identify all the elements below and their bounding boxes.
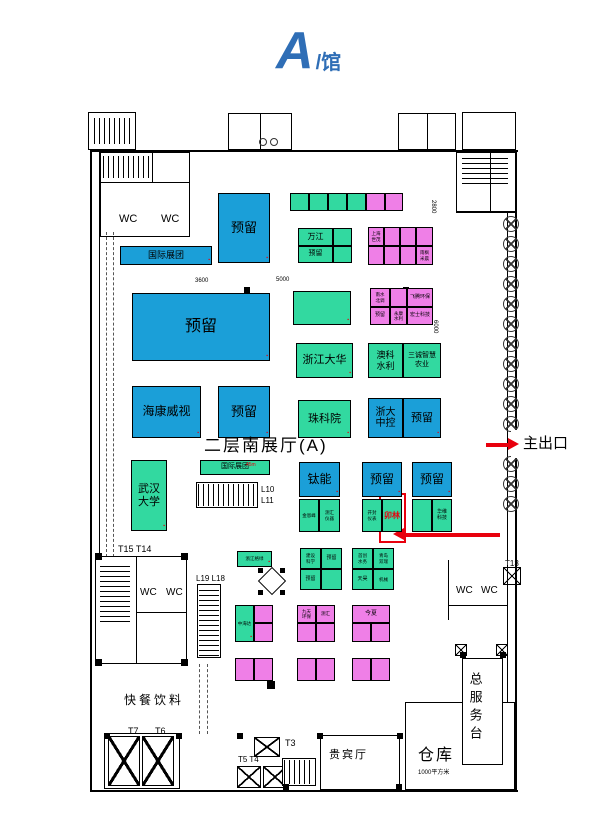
column-circle xyxy=(503,356,519,372)
marker-circle xyxy=(259,138,267,146)
booth xyxy=(316,658,335,681)
booth xyxy=(400,227,416,246)
column-square xyxy=(176,733,182,739)
column-square xyxy=(258,590,263,595)
wc-label: WC xyxy=(481,586,498,597)
booth: 测汇 xyxy=(316,605,335,623)
room-outline xyxy=(320,735,400,790)
column-square xyxy=(258,568,263,573)
column-square xyxy=(317,733,323,739)
size-mark: ▪ xyxy=(349,371,351,376)
booth: 预留▪ xyxy=(218,386,270,438)
column-square xyxy=(104,733,110,739)
hall-suffix: /馆 xyxy=(316,53,342,75)
size-mark: ▪ xyxy=(266,354,268,359)
wall xyxy=(100,182,190,183)
column-square xyxy=(283,784,289,790)
booth: 雨枫 米晨 xyxy=(416,246,433,265)
wall xyxy=(90,150,92,792)
booth xyxy=(254,605,273,623)
column-circle xyxy=(503,236,519,252)
booth: ▪ xyxy=(293,291,351,325)
booth: 预留 xyxy=(321,548,342,569)
wall xyxy=(90,790,518,792)
arrow-head xyxy=(508,438,519,450)
booth-taineng: 钛能▪ xyxy=(299,462,340,497)
size-mark: ▪ xyxy=(268,560,270,565)
booth xyxy=(309,193,328,211)
booth: 开封 仪表 xyxy=(362,499,382,532)
booth xyxy=(352,658,371,681)
hall-section-title: 二层南展厅(A) xyxy=(204,437,328,455)
service-desk-label: 总服务台 xyxy=(468,672,482,744)
booth xyxy=(254,623,273,642)
booth: 预留▪ xyxy=(362,462,402,497)
column-circle xyxy=(503,256,519,272)
elevator-label: T3 xyxy=(285,739,296,748)
column-square xyxy=(181,553,188,560)
column-square xyxy=(95,659,102,666)
warehouse-label: 仓库 xyxy=(418,748,454,765)
booth-intl-group-mid: 国际展团 xyxy=(200,460,270,475)
booth-highlighted: 卯林 xyxy=(382,499,402,532)
wall xyxy=(456,212,516,213)
wc-label: WC xyxy=(166,588,183,599)
booth: 机械 xyxy=(373,569,394,590)
size-mark: ▪ xyxy=(347,318,349,323)
column-square xyxy=(280,568,285,573)
booth: 天昊 xyxy=(352,569,373,590)
booth-hikvision: 海康威视▪ xyxy=(132,386,201,438)
size-mark: ▪ xyxy=(208,258,210,263)
column-square xyxy=(460,652,466,658)
dim-label: 6000 xyxy=(432,320,438,333)
dim-label: 3600 xyxy=(195,278,208,284)
wall xyxy=(448,605,508,606)
elevator-label: T7 xyxy=(128,727,139,736)
column-circle xyxy=(503,316,519,332)
booth: 首创 水务 xyxy=(352,548,373,569)
stair-label: L10 xyxy=(261,486,274,494)
stairs-hatch xyxy=(462,158,508,184)
booth: 建设 科学 xyxy=(300,548,321,569)
elevator-label: T5 T4 xyxy=(238,756,259,764)
elevator-shaft xyxy=(108,736,140,786)
booth xyxy=(254,658,273,681)
booth-wuhan-university: 武汉 大学▪ xyxy=(131,460,167,531)
column-square xyxy=(396,784,402,790)
column-circle xyxy=(503,296,519,312)
column-square xyxy=(95,553,102,560)
booth-aoke: 澳科 水利 xyxy=(368,343,403,378)
stairs-hatch xyxy=(199,586,219,656)
booth: 预留 xyxy=(300,569,321,590)
stairs-hatch xyxy=(100,562,130,622)
size-mark: ▪ xyxy=(250,635,252,640)
booth: 测汇 仪器 xyxy=(319,499,340,532)
booth xyxy=(366,193,385,211)
booth xyxy=(400,246,416,265)
size-mark: ▪ xyxy=(266,256,268,261)
booth xyxy=(371,658,390,681)
corridor-dash xyxy=(207,664,208,734)
column-square xyxy=(500,652,506,658)
room-outline xyxy=(462,112,516,150)
column-square xyxy=(237,733,243,739)
booth: 青岛 双瑞 xyxy=(373,548,394,569)
booth-sancheng: 三诚智慧 农业 xyxy=(403,343,441,378)
booth-zhonghaida: 中海达▪ xyxy=(235,605,254,642)
main-exit-label: 主出口 xyxy=(523,436,568,452)
wc-label: WC xyxy=(119,214,137,226)
booth xyxy=(297,658,316,681)
booth xyxy=(384,227,400,246)
elevator-shaft xyxy=(237,766,261,788)
column-circle xyxy=(503,336,519,352)
booth xyxy=(297,623,316,642)
booth xyxy=(390,288,407,307)
corridor-dash xyxy=(106,232,107,557)
booth xyxy=(290,193,309,211)
wc-label: WC xyxy=(140,588,157,599)
booth xyxy=(316,623,335,642)
booth xyxy=(384,246,400,265)
corridor-dash xyxy=(199,664,200,734)
booth-feiteng: 飞腾环保 xyxy=(407,288,433,307)
column-square xyxy=(397,733,403,739)
booth xyxy=(347,193,366,211)
size-mark: ▪ xyxy=(398,490,400,495)
booth xyxy=(321,569,342,590)
stairs-hatch xyxy=(103,156,149,178)
booth xyxy=(371,623,390,642)
column-circle xyxy=(503,456,519,472)
warehouse-area-label: 1000平方米 xyxy=(418,770,449,776)
booth-zhukeyuan: 珠科院▪ xyxy=(298,400,351,438)
size-mark: ▪ xyxy=(437,431,439,436)
wall xyxy=(427,113,428,150)
size-mark: ▪ xyxy=(336,490,338,495)
column-circle xyxy=(503,496,519,512)
booth-reserved-large: 预留▪ xyxy=(132,293,270,361)
elevator-shaft xyxy=(142,736,174,786)
dim-label: 5000 xyxy=(276,277,289,283)
booth xyxy=(385,193,403,211)
floor-plan: A /馆 预留▪国际展团▪万江预留上海 世茂雨枫 米晨预留▪海康威视▪预留▪▪南… xyxy=(0,0,600,830)
size-label: 45m xyxy=(246,463,256,468)
booth-wanjiang: 万江 xyxy=(298,228,333,246)
main-exit-arrow xyxy=(486,438,519,451)
booth: 预留▪ xyxy=(403,398,441,438)
size-mark: ▪ xyxy=(163,524,165,529)
stair-label: L11 xyxy=(261,497,274,505)
booth: 永康 水利 xyxy=(390,307,407,325)
stairs-hatch xyxy=(94,118,130,144)
size-mark: ▪ xyxy=(448,490,450,495)
booth-huawei-tech: 华维 科技 xyxy=(432,499,452,532)
dim-label: 2800 xyxy=(430,200,436,213)
marker-circle xyxy=(270,138,278,146)
elevator-label: T13 xyxy=(505,560,519,568)
arrow-shaft xyxy=(486,443,509,447)
booth xyxy=(412,499,432,532)
column-square xyxy=(181,659,188,666)
size-mark: ▪ xyxy=(197,431,199,436)
booth: 浙江格绿▪ xyxy=(237,551,272,567)
stair-label: L19 L18 xyxy=(196,575,225,583)
booth-dahua: 浙江大华▪ xyxy=(296,343,353,378)
booth: 今夏 xyxy=(352,605,390,623)
wall xyxy=(448,560,449,620)
fastfood-label: 快餐饮料 xyxy=(124,694,184,707)
hall-letter: A xyxy=(276,28,314,75)
elevator-label: T15 T14 xyxy=(118,545,151,554)
column-circle xyxy=(503,216,519,232)
column-circle xyxy=(503,396,519,412)
column-circle xyxy=(503,476,519,492)
booth xyxy=(368,246,384,265)
booth: 南水 北调 xyxy=(370,288,390,307)
booth-reserved-top: 预留▪ xyxy=(218,193,270,263)
column-square xyxy=(267,681,275,689)
booth xyxy=(416,227,433,246)
booth xyxy=(328,193,347,211)
column-circle xyxy=(503,276,519,292)
corridor-dash xyxy=(113,232,114,557)
arrow-shaft xyxy=(403,533,500,537)
booth xyxy=(235,658,254,681)
size-mark: ▪ xyxy=(347,431,349,436)
booth-zheda-zhongkong: 浙大 中控 xyxy=(368,398,403,438)
booth: 预留▪ xyxy=(412,462,452,497)
wall xyxy=(490,152,491,212)
wall xyxy=(152,152,153,182)
booth-intl-group-top: 国际展团▪ xyxy=(120,246,212,265)
booth: 上海 世茂 xyxy=(368,227,384,246)
elevator-shaft xyxy=(503,567,521,585)
wc-label: WC xyxy=(161,214,179,226)
column-square xyxy=(280,590,285,595)
booth xyxy=(333,228,352,246)
stairs-hatch xyxy=(284,760,314,784)
stairs-hatch xyxy=(198,484,256,506)
booth xyxy=(352,623,371,642)
vip-room-label: 贵宾厅 xyxy=(329,750,368,762)
wc-label: WC xyxy=(456,586,473,597)
booth: 宏士科技 xyxy=(407,307,433,325)
booth: 预留 xyxy=(298,246,333,263)
elevator-label: T6 xyxy=(155,727,166,736)
booth: 预留 xyxy=(370,307,390,325)
wall xyxy=(136,556,137,664)
column-circle xyxy=(503,376,519,392)
booth xyxy=(333,246,352,263)
page-title: A /馆 xyxy=(276,28,341,75)
wall xyxy=(136,612,187,613)
booth: 金恩峰 xyxy=(299,499,319,532)
booth: 九天 环保 xyxy=(297,605,316,623)
elevator-shaft xyxy=(254,737,280,757)
